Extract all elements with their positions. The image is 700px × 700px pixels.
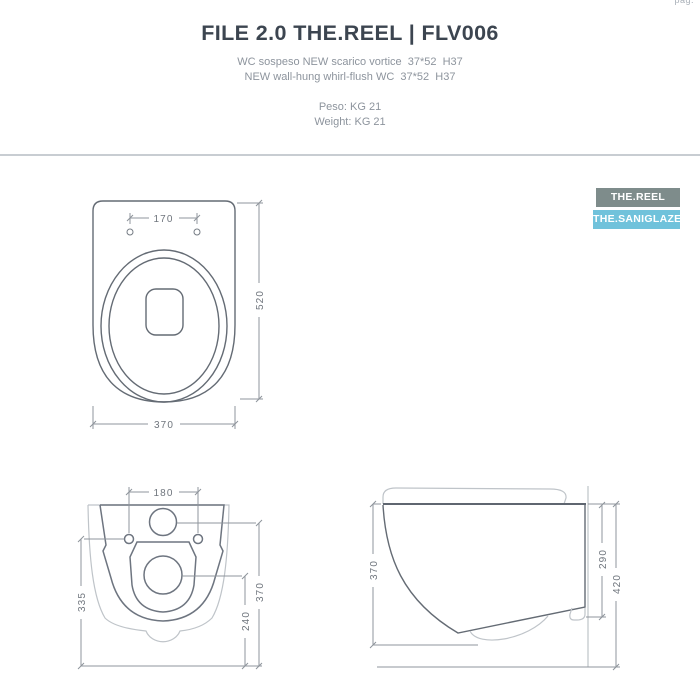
dim-top-width: 370 <box>90 406 238 431</box>
top-view-seat-outer-ring <box>101 250 227 402</box>
dim-label-335: 335 <box>77 592 88 612</box>
dim-label-370-rear: 370 <box>255 582 266 602</box>
side-view-body-outline <box>383 505 585 633</box>
spec-sheet-page: pag. FILE 2.0 THE.REEL | FLV006 WC sospe… <box>0 0 700 700</box>
dim-side-total-height: 420 <box>588 501 624 670</box>
dim-side-outlet-height: 290 <box>586 502 610 620</box>
dim-rear-height-370: 370 <box>252 520 267 669</box>
rear-view-body-outline <box>100 505 224 621</box>
dim-label-370-side: 370 <box>369 560 380 580</box>
dim-side-body-height: 370 <box>366 501 478 648</box>
dim-label-370-top: 370 <box>154 420 174 431</box>
drawing-side-view: 370 290 420 <box>366 486 624 670</box>
dim-rear-hole-spacing: 180 <box>126 485 201 499</box>
side-view-seat-lid <box>383 488 566 504</box>
top-view-bowl-inner-ring <box>109 258 219 394</box>
dim-rear-height-240: 240 <box>238 573 253 669</box>
hinge-hole-left <box>127 229 133 235</box>
water-inlet-hole <box>150 509 177 536</box>
top-view-flush-opening <box>146 289 183 335</box>
rear-view-inner-panel <box>130 542 196 612</box>
drawing-rear-view: 180 335 370 240 <box>74 485 267 669</box>
rear-leader-lines <box>84 497 256 576</box>
dim-label-240: 240 <box>241 611 252 631</box>
dim-label-520: 520 <box>255 290 266 310</box>
dim-rear-height-335: 335 <box>74 536 89 669</box>
dim-top-hole-spacing: 170 <box>127 211 200 225</box>
drawing-top-view: 170 520 370 <box>90 200 266 431</box>
hinge-hole-right <box>194 229 200 235</box>
dim-label-170: 170 <box>154 214 174 225</box>
dim-label-180: 180 <box>154 488 174 499</box>
drain-outlet-hole <box>144 556 182 594</box>
mount-hole-left <box>125 535 134 544</box>
dim-top-depth: 520 <box>237 200 266 402</box>
mount-hole-right <box>194 535 203 544</box>
dim-label-420: 420 <box>612 574 623 594</box>
technical-drawings: 170 520 370 <box>0 0 700 700</box>
dim-label-290: 290 <box>598 549 609 569</box>
